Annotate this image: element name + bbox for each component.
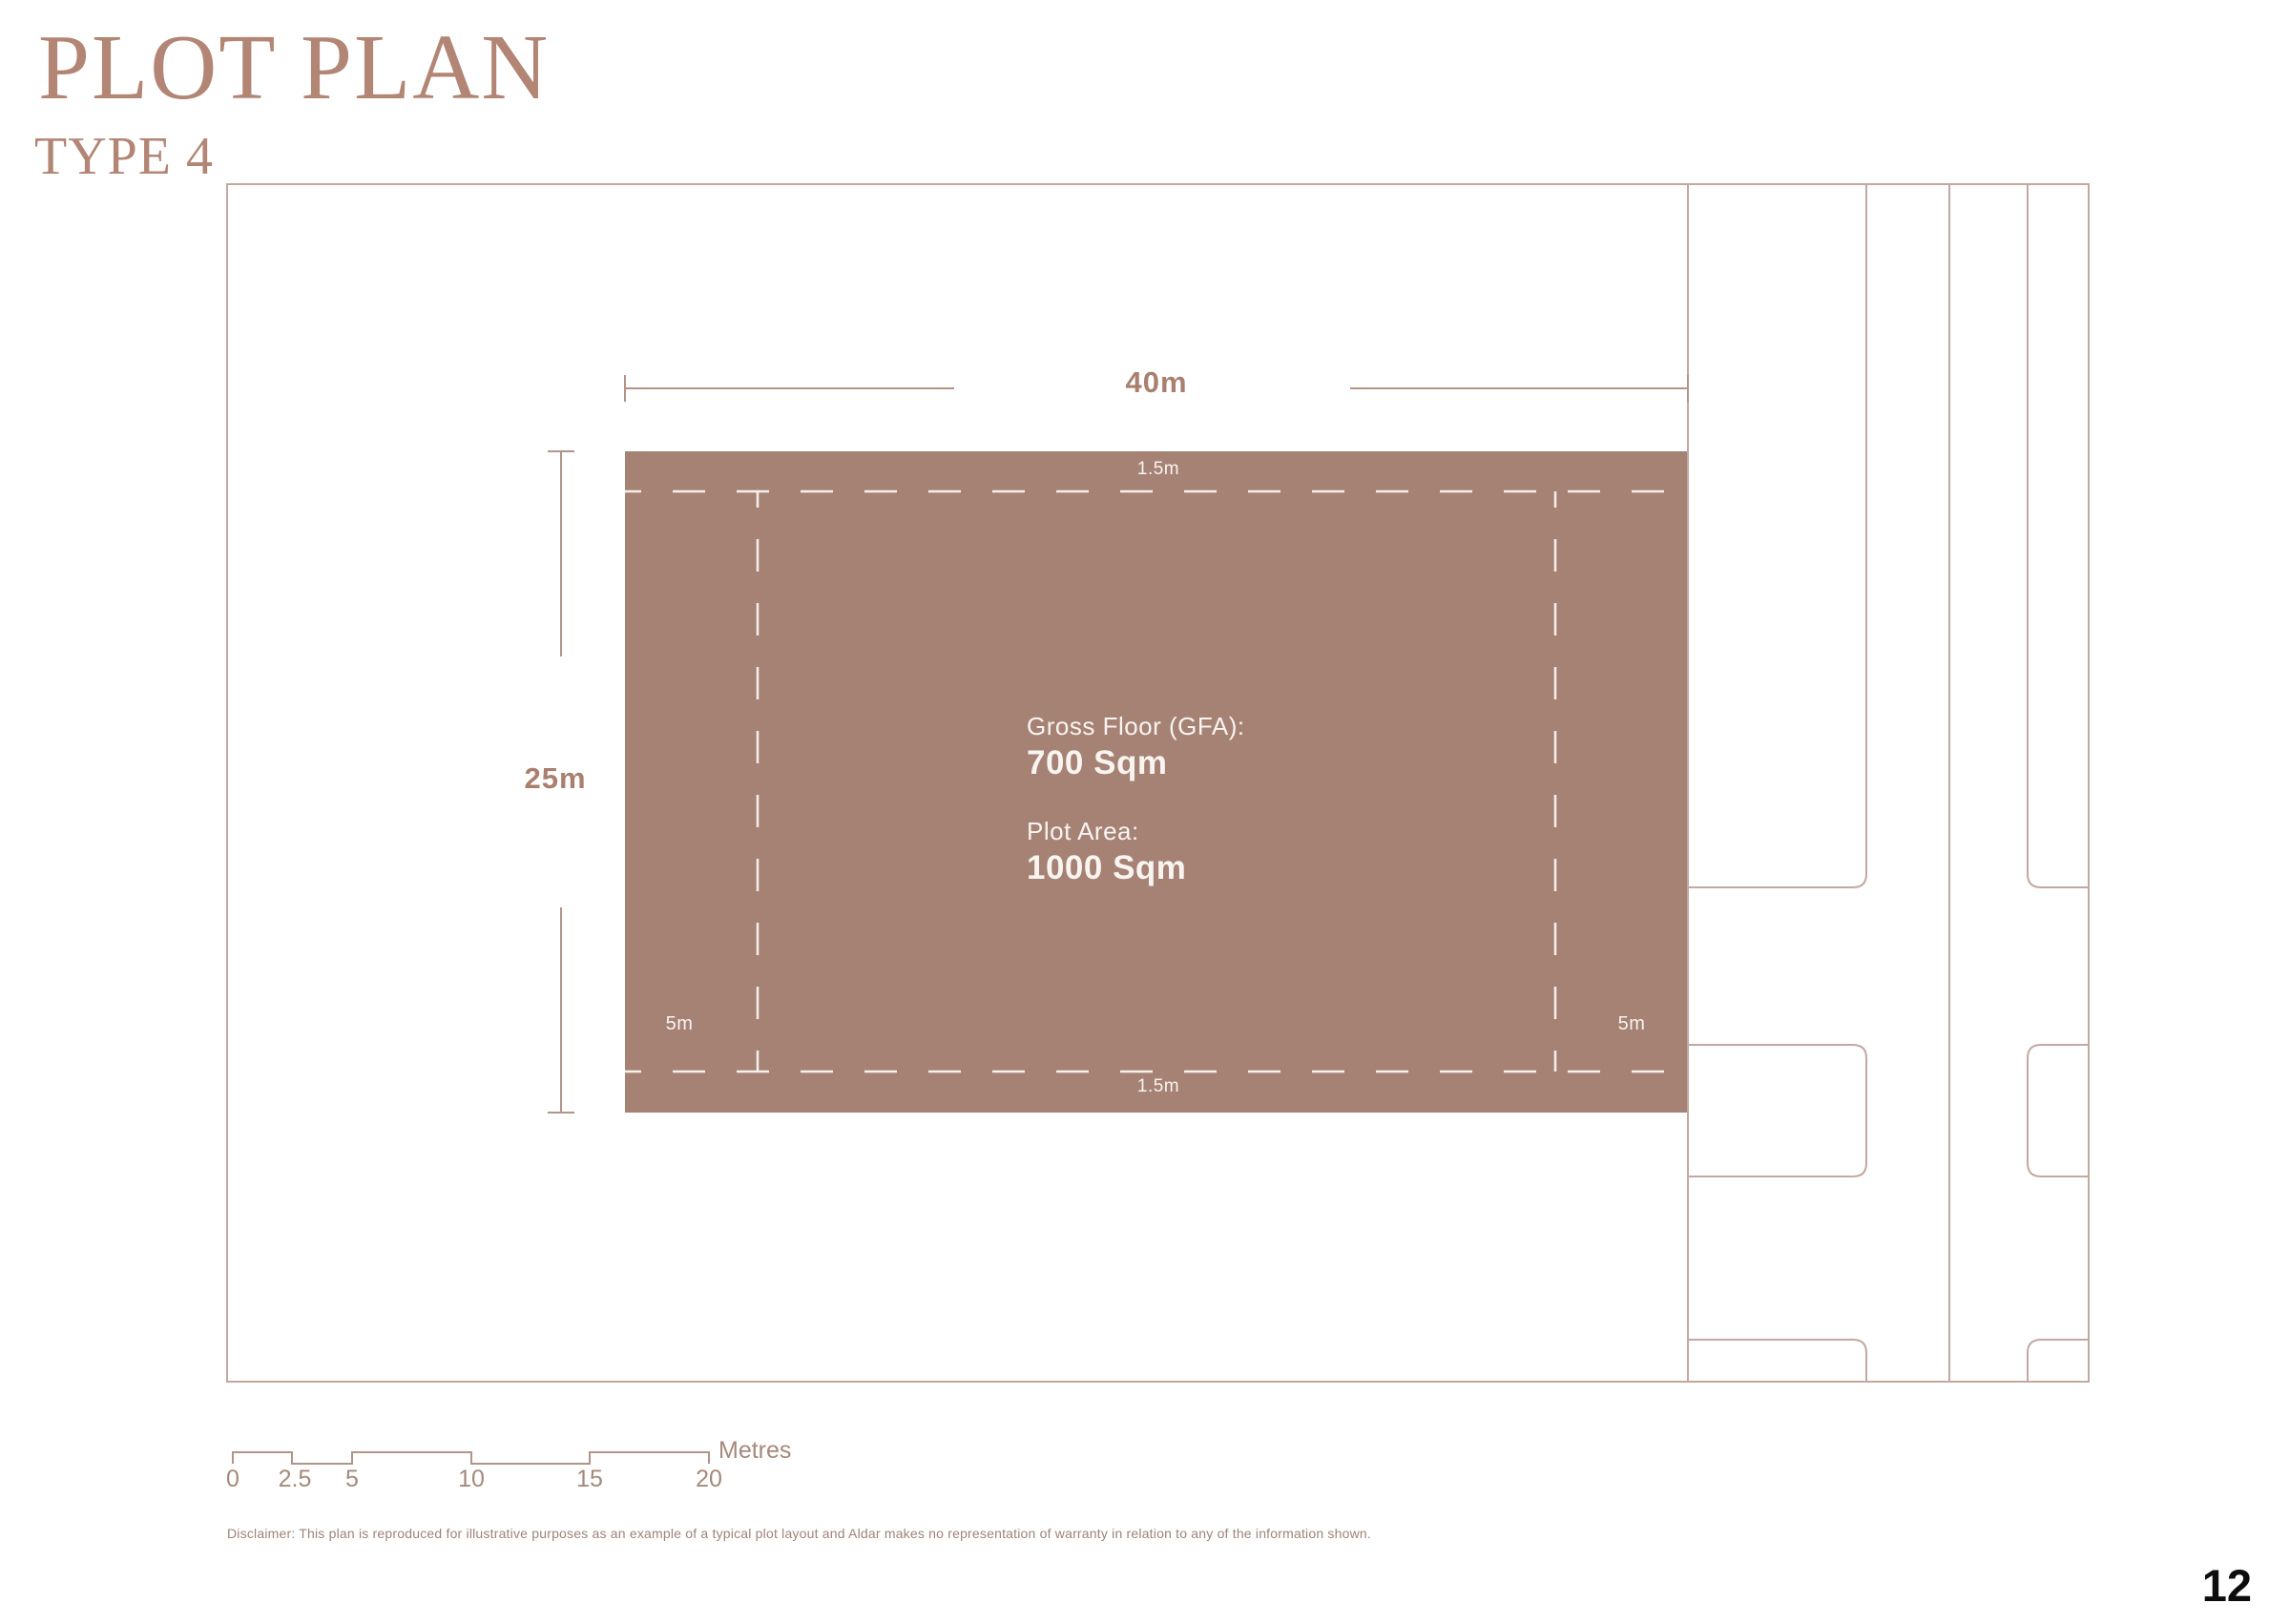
scale-tick-label: 0: [226, 1466, 239, 1493]
depth-dimension-label: 25m: [469, 761, 641, 796]
scale-bar: [233, 1452, 709, 1464]
scale-tick-label: 10: [458, 1466, 485, 1493]
adjacent-plot-outline: [2028, 184, 2089, 887]
scale-unit-label: Metres: [718, 1437, 791, 1465]
setback-bottom-label: 1.5m: [1101, 1076, 1216, 1097]
scale-tick-label: 2.5: [279, 1466, 312, 1493]
plot-area-value: 1000 Sqm: [1027, 847, 1245, 889]
plot-area-label: Plot Area:: [1027, 815, 1245, 847]
gfa-label: Gross Floor (GFA):: [1027, 710, 1245, 742]
adjacent-plot-outline: [2028, 1045, 2089, 1176]
spacer: [1027, 784, 1245, 815]
gfa-value: 700 Sqm: [1027, 742, 1245, 784]
scale-tick-label: 5: [345, 1466, 359, 1493]
parcel-info-block: Gross Floor (GFA): 700 Sqm Plot Area: 10…: [1027, 710, 1245, 889]
scale-tick-label: 15: [576, 1466, 603, 1493]
adjacent-plot-outline: [1688, 1340, 1866, 1382]
width-dimension-label: 40m: [1071, 365, 1242, 400]
plot-plan-page: PLOT PLAN TYPE 4: [0, 0, 2290, 1624]
disclaimer-text: Disclaimer: This plan is reproduced for …: [227, 1526, 1371, 1541]
setback-top-label: 1.5m: [1101, 459, 1216, 480]
adjacent-plot-outline: [1688, 184, 1866, 887]
scale-tick-label: 20: [696, 1466, 722, 1493]
adjacent-plot-outline: [2028, 1340, 2089, 1382]
page-number: 12: [2147, 1559, 2252, 1612]
setback-left-label: 5m: [651, 1013, 708, 1035]
adjacent-plot-outline: [1688, 1045, 1866, 1176]
setback-right-label: 5m: [1603, 1013, 1660, 1035]
